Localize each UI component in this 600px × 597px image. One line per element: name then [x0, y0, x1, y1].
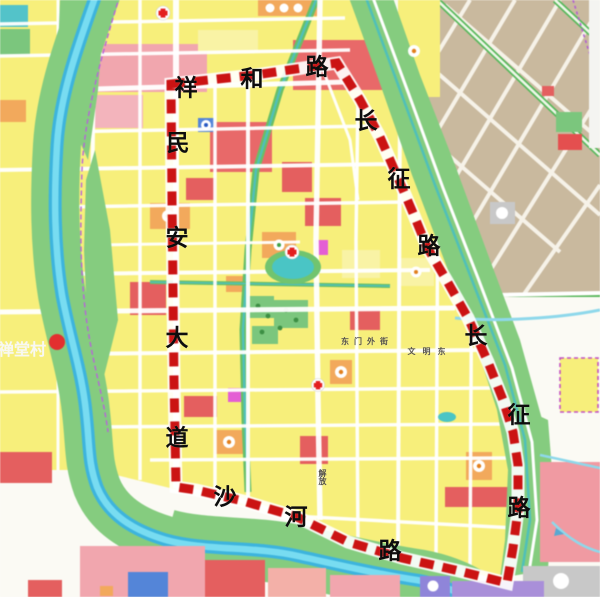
map-canvas — [0, 0, 600, 597]
village-marker — [49, 334, 65, 350]
planning-map: 祥和路民安大道长征路长征路沙河路禅堂村东门外街文明东解放 — [0, 0, 600, 597]
